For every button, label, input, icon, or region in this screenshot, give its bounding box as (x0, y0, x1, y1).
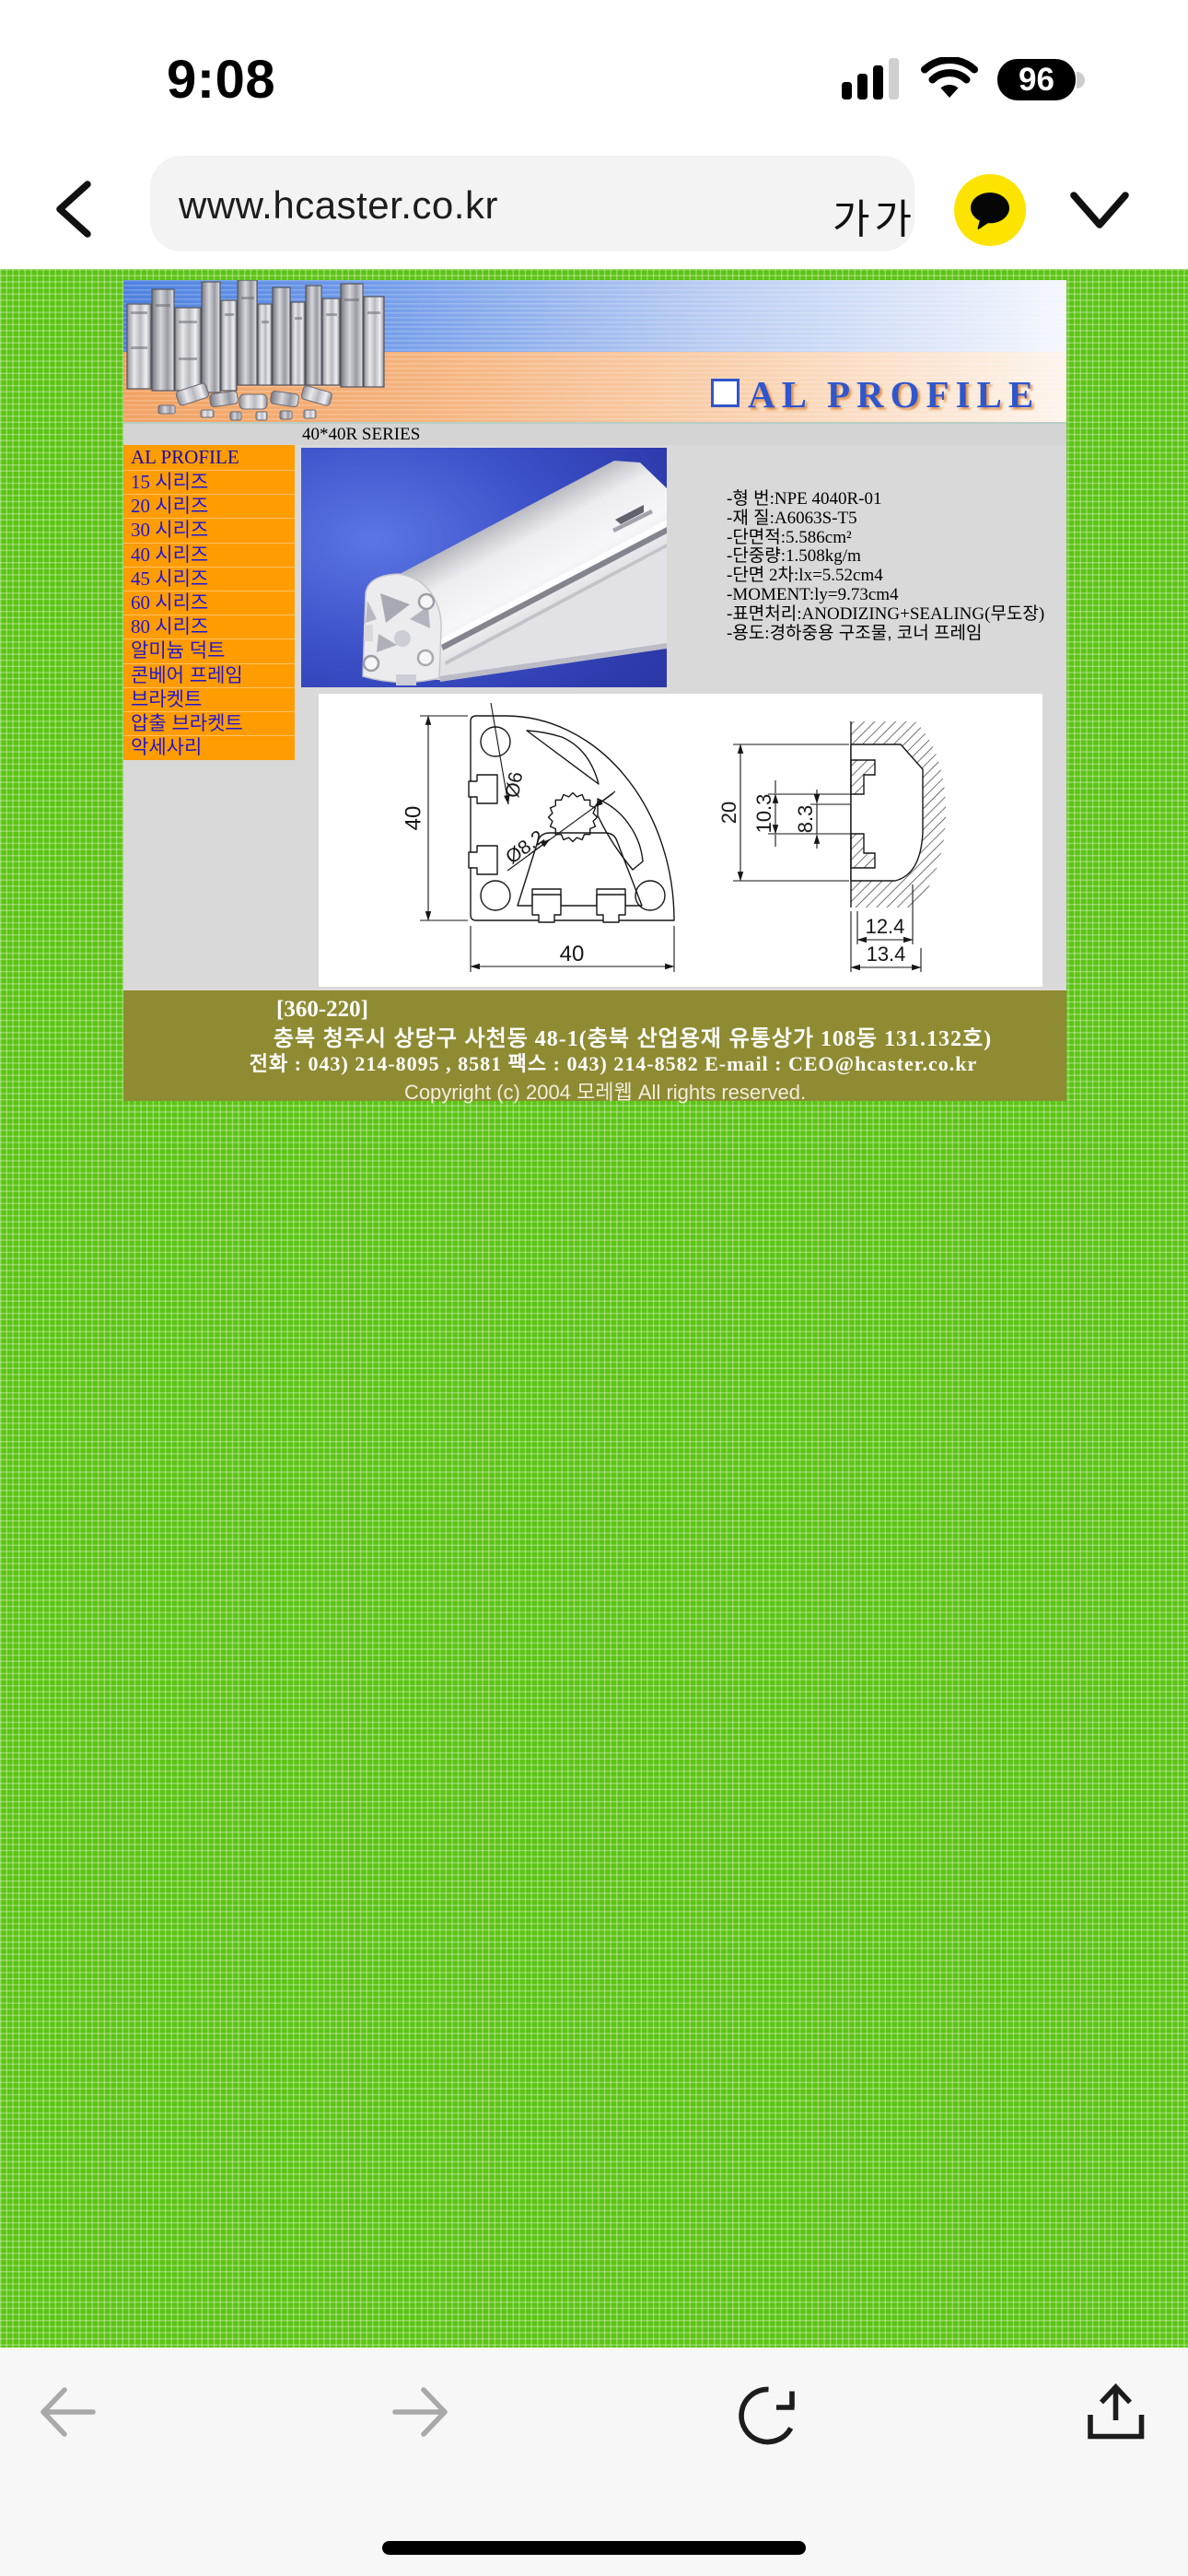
svg-text:12.4: 12.4 (866, 915, 905, 938)
svg-text:40: 40 (560, 942, 585, 966)
svg-text:13.4: 13.4 (867, 943, 906, 966)
svg-text:Ø6: Ø6 (502, 770, 528, 800)
svg-text:10.3: 10.3 (752, 794, 775, 834)
svg-text:20: 20 (717, 802, 740, 824)
svg-text:40: 40 (401, 806, 425, 831)
svg-text:8.3: 8.3 (794, 805, 817, 834)
